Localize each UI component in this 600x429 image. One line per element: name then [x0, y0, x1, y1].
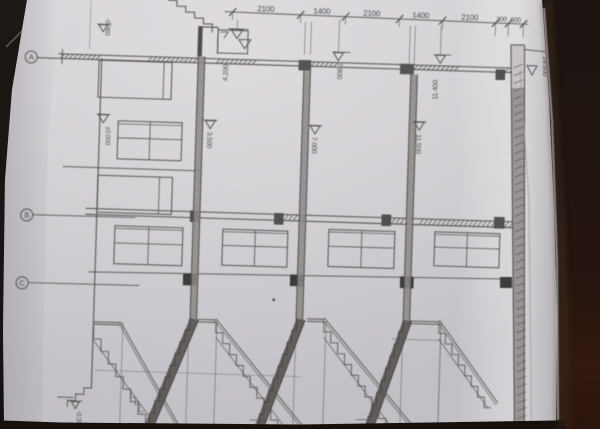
svg-text:600: 600: [510, 17, 521, 24]
svg-text:2100: 2100: [461, 13, 479, 23]
svg-text:4.200: 4.200: [223, 64, 231, 81]
svg-text:B: B: [24, 210, 29, 219]
svg-text:300: 300: [496, 16, 507, 23]
svg-text:1400: 1400: [412, 11, 430, 21]
svg-text:11.400: 11.400: [432, 80, 440, 100]
svg-text:A: A: [29, 53, 34, 62]
svg-text:1400: 1400: [313, 7, 331, 17]
svg-text:±0.000: ±0.000: [103, 126, 111, 145]
svg-text:2100: 2100: [257, 4, 275, 14]
svg-text:3.500: 3.500: [205, 132, 213, 149]
svg-text:7.000: 7.000: [310, 137, 318, 154]
svg-text:7.800: 7.800: [335, 63, 343, 80]
svg-text:-0.060: -0.060: [103, 18, 111, 36]
svg-text:2100: 2100: [363, 9, 381, 19]
svg-text:11.500: 11.500: [414, 134, 422, 154]
